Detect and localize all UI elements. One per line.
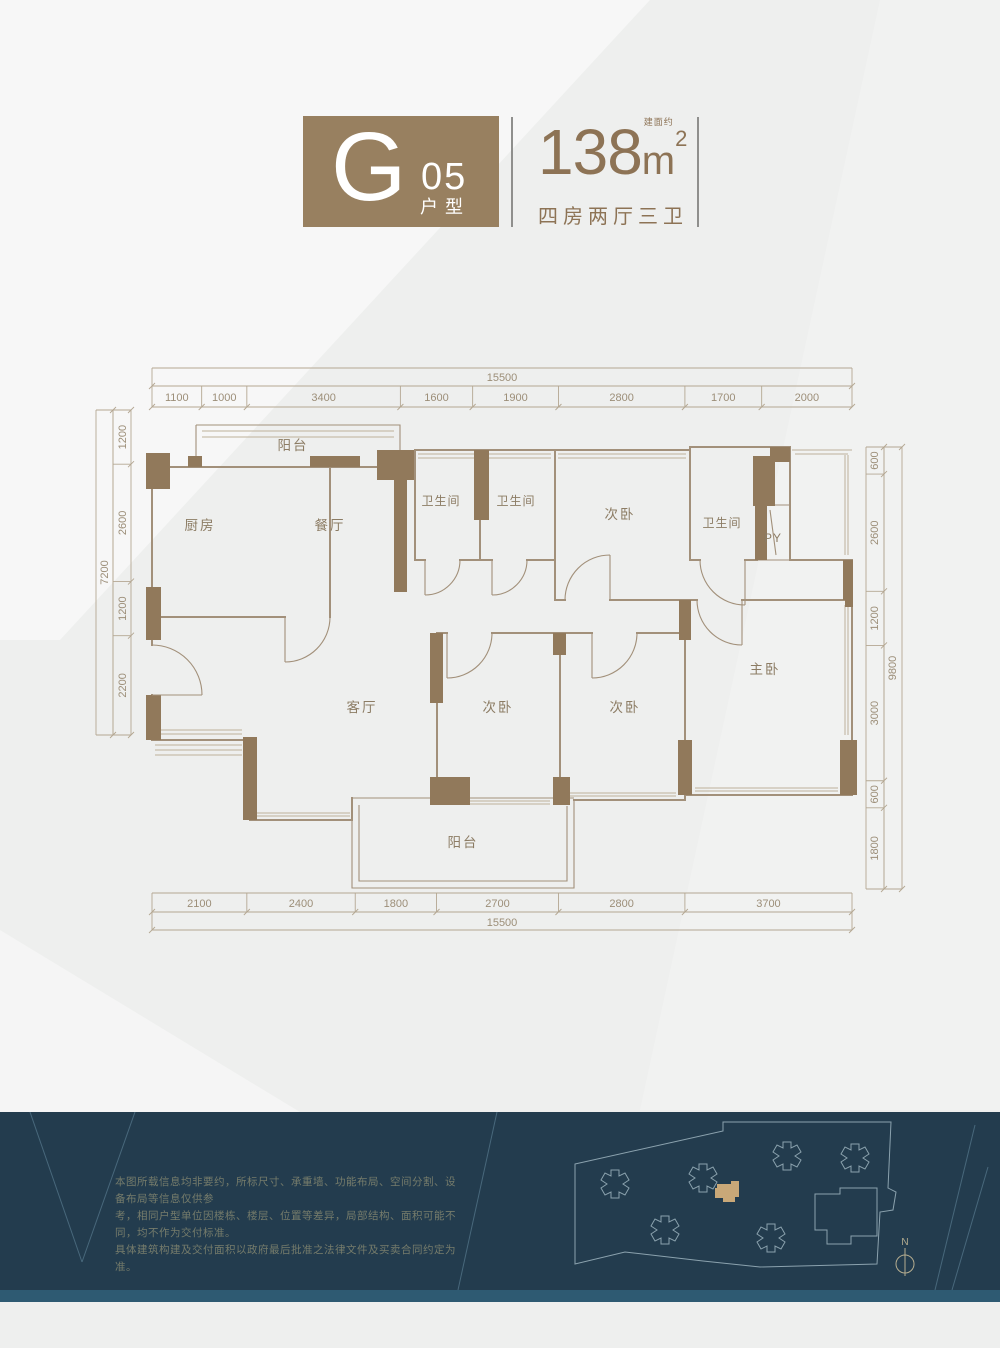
dimension-value: 2700 [485, 898, 509, 910]
footer-accent-strip [0, 1290, 1000, 1302]
unit-badge: G 05 户型 [303, 116, 499, 227]
dimension-value: 2400 [289, 898, 313, 910]
dimension-value: 9800 [887, 656, 899, 680]
dimension-value: 600 [869, 785, 881, 803]
room-label: 餐厅 [315, 518, 346, 533]
dimension-value: 3400 [311, 392, 335, 404]
dimension-value: 1200 [869, 606, 881, 630]
north-compass-icon: N [896, 1237, 914, 1276]
room-label: 次卧 [483, 700, 514, 715]
unit-number: 05 [421, 158, 467, 196]
unit-type-label: 户型 [420, 198, 470, 216]
room-label: 卫生间 [421, 494, 460, 508]
doors-layer [152, 555, 745, 695]
dimension-value: 2100 [187, 898, 211, 910]
dimension-value: 1700 [711, 392, 735, 404]
compass-label: N [901, 1237, 908, 1248]
highlighted-building [715, 1181, 739, 1202]
dimension-value: 3700 [756, 898, 780, 910]
disclaimer-text: 本图所载信息均非要约，所标尺寸、承重墙、功能布局、空间分割、设备布局等信息仅供参… [115, 1174, 465, 1276]
dimension-value: 3000 [869, 701, 881, 725]
room-label: 客厅 [347, 699, 378, 715]
windows-layer [155, 431, 852, 816]
area-unit: m [642, 139, 675, 183]
large-building-outline [815, 1188, 877, 1244]
dimension-value: 1800 [869, 836, 881, 860]
footer-band: 本图所载信息均非要约，所标尺寸、承重墙、功能布局、空间分割、设备布局等信息仅供参… [0, 1112, 1000, 1290]
header-divider-right [697, 117, 699, 227]
room-label: 次卧 [605, 507, 636, 522]
disclaimer-line: 考，相同户型单位因楼栋、楼层、位置等差异，局部结构、面积可能不同，均不作为交付标… [115, 1208, 465, 1242]
room-label: 厨房 [185, 518, 216, 533]
room-label: 阳台 [448, 835, 479, 850]
area-block: 138建面约m2 四房两厅三卫 [538, 120, 688, 229]
dimension-value: 2600 [869, 520, 881, 544]
dimension-value: 1200 [117, 425, 129, 449]
dimension-value: 1000 [212, 392, 236, 404]
dimension-value: 1100 [165, 392, 189, 404]
disclaimer-line: 本图所载信息均非要约，所标尺寸、承重墙、功能布局、空间分割、设备布局等信息仅供参 [115, 1174, 465, 1208]
layout-label: 四房两厅三卫 [538, 200, 688, 229]
room-label: 主卧 [750, 662, 781, 677]
room-label: 卫生间 [496, 494, 535, 508]
site-plan: N [555, 1118, 985, 1290]
dimension-value: 2000 [795, 392, 819, 404]
area-prefix-label: 建面约 [644, 115, 674, 128]
unit-letter: G [331, 118, 406, 215]
dimension-value: 600 [869, 451, 881, 469]
dimension-value: 2200 [117, 673, 129, 697]
dimension-value: 15500 [487, 917, 518, 929]
dimension-value: 15500 [487, 372, 518, 384]
dimension-value: 7200 [99, 560, 111, 584]
area-exponent: 2 [675, 126, 687, 151]
dimension-value: 1600 [424, 392, 448, 404]
floor-plan: 1550011001000340016001900280017002000210… [85, 360, 925, 940]
dimension-value: 2800 [609, 898, 633, 910]
room-label: 次卧 [610, 700, 641, 715]
room-label: PY [764, 531, 782, 545]
dimension-value: 2800 [609, 392, 633, 404]
disclaimer-line: 具体建筑构建及交付面积以政府最后批准之法律文件及买卖合同约定为准。 [115, 1242, 465, 1276]
room-label: 卫生间 [702, 516, 741, 530]
dimension-value: 2600 [117, 511, 129, 535]
area-line: 138建面约m2 [538, 120, 688, 184]
dimension-value: 1900 [503, 392, 527, 404]
header-divider-left [511, 117, 513, 227]
area-value: 138 [538, 116, 642, 188]
dimension-value: 1800 [384, 898, 408, 910]
room-label: 阳台 [278, 438, 309, 453]
floorplan-poster: G 05 户型 138建面约m2 四房两厅三卫 [0, 0, 1000, 1348]
dimension-value: 1200 [117, 596, 129, 620]
